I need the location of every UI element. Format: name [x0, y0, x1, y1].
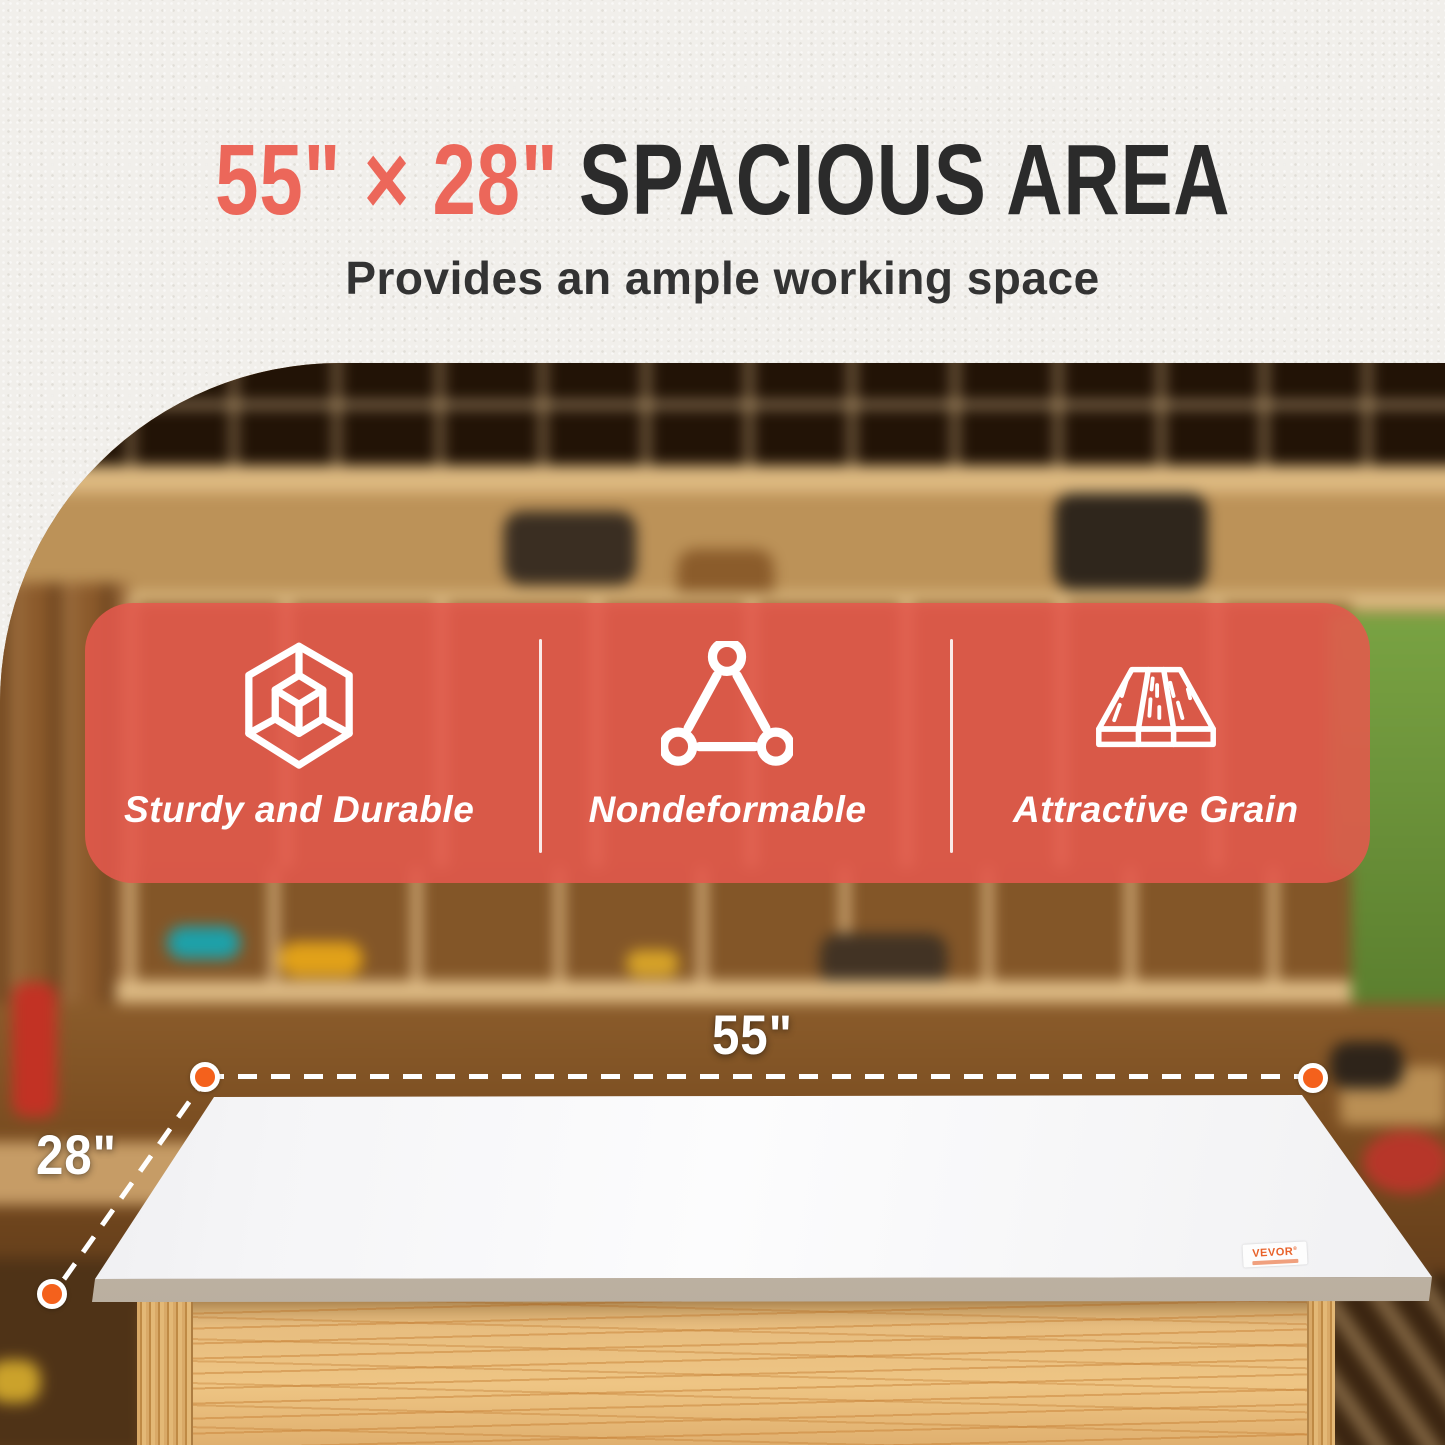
brand-sticker: VEVOR® [1242, 1241, 1307, 1267]
title-rest: SPACIOUS AREA [579, 124, 1231, 236]
triangle-nodes-icon [661, 641, 793, 773]
title-dimensions: 55" × 28" [215, 124, 558, 236]
width-dimension-line [205, 1074, 1313, 1079]
page-subtitle: Provides an ample working space [0, 251, 1445, 305]
feature-grain: Attractive Grain [942, 603, 1370, 883]
fire-extinguisher [12, 983, 57, 1118]
page-title: 55" × 28"SPACIOUS AREA [0, 128, 1445, 232]
dimension-endpoint-dot [1298, 1063, 1328, 1093]
feature-nondeformable: Nondeformable [513, 603, 941, 883]
brand-tagline-bar [1252, 1259, 1298, 1265]
feature-label: Nondeformable [589, 789, 867, 831]
band-divider [539, 639, 542, 853]
dimension-endpoint-dot [190, 1062, 220, 1092]
product-infographic: 55" × 28"SPACIOUS AREA Provides an ample… [0, 0, 1445, 1445]
width-dimension-label: 55" [712, 1002, 793, 1067]
wood-plank-icon [1090, 641, 1222, 773]
feature-label: Sturdy and Durable [124, 789, 474, 831]
feature-sturdy: Sturdy and Durable [85, 603, 513, 883]
brand-logo: VEVOR® [1252, 1244, 1298, 1260]
feature-label: Attractive Grain [1013, 789, 1299, 831]
wall-cubbies [24, 363, 1445, 471]
band-divider [950, 639, 953, 853]
dimension-endpoint-dot [37, 1279, 67, 1309]
feature-band: Sturdy and Durable Nondeformable [85, 603, 1370, 883]
depth-dimension-label: 28" [36, 1122, 117, 1187]
wooden-table-base [137, 1293, 1335, 1445]
cube-wireframe-icon [233, 641, 365, 773]
